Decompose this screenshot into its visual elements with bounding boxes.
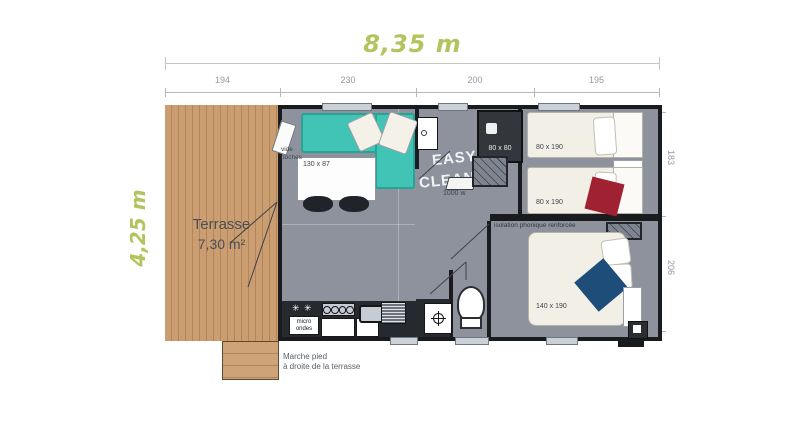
window-wc-bottom (455, 337, 489, 345)
floor-seam-horizontal (282, 224, 415, 225)
door-handle-icon (421, 130, 427, 136)
master-corner-unit-detail (633, 325, 641, 333)
footnote: Marche pied à droite de la terrasse (283, 352, 360, 372)
microwave-label-1: micro (290, 319, 318, 326)
floorplan-canvas: 8,35 m 194 230 200 195 4,25 m 183 206 Te… (0, 0, 800, 448)
kitchen-cabinet-1 (321, 318, 355, 337)
burner-icon (346, 306, 354, 314)
segment-tick-1 (165, 88, 166, 97)
microwave-icon: ✳ ✳ (292, 303, 313, 314)
washbasin-crosshair-icon (433, 313, 444, 324)
twin-bed-1-label: 80 x 190 (536, 144, 563, 151)
window-bathroom-top (438, 103, 468, 111)
toilet-tank (460, 317, 482, 329)
total-width-dimension: 8,35 m (165, 30, 660, 58)
twin-bed-1-pillow (593, 116, 618, 155)
chair-2 (339, 196, 369, 212)
shower-size-label: 80 x 80 (477, 145, 523, 152)
twin-bed-2-label: 80 x 190 (536, 199, 563, 206)
right-segment-label-1: 183 (666, 150, 676, 165)
total-height-dimension: 4,25 m (108, 188, 168, 268)
shower-head-icon (486, 123, 497, 134)
master-bed-label: 140 x 190 (536, 303, 567, 310)
right-segment-label-2: 206 (666, 260, 676, 275)
segment-line (165, 92, 660, 93)
window-kitchen-bottom (390, 337, 418, 345)
footnote-line-1: Marche pied (283, 352, 360, 362)
microwave-label-2: ondes (290, 326, 318, 333)
segment-label-2: 230 (280, 75, 416, 85)
wall-rear-step (618, 341, 644, 347)
chair-1 (303, 196, 333, 212)
vide-poches-line-2: poches (281, 154, 302, 162)
microwave-box: micro ondes (289, 316, 319, 335)
burner-icon (339, 306, 347, 314)
total-width-tick-right (659, 57, 660, 70)
vide-poches-line-1: vide (281, 146, 302, 154)
sink-drainer (381, 302, 406, 324)
total-width-line (165, 63, 660, 64)
hob (322, 303, 355, 316)
window-living-top (322, 103, 372, 111)
twin-bed-1-headboard (613, 112, 643, 158)
terrace-area: 7,30 m² (165, 236, 278, 252)
terrace-steps (222, 341, 279, 380)
burner-icon (331, 306, 339, 314)
wall-soundproof-separator (490, 214, 658, 221)
segment-tick-5 (659, 88, 660, 97)
burner-icon (323, 306, 331, 314)
segment-label-4: 195 (534, 75, 659, 85)
terrace-title: Terrasse (165, 216, 278, 233)
segment-tick-2 (280, 88, 281, 97)
heater-label: 1000 w (443, 190, 466, 198)
washbasin (424, 303, 452, 334)
wardrobe-hall (472, 156, 508, 187)
segment-label-3: 200 (416, 75, 534, 85)
footnote-line-2: à droite de la terrasse (283, 362, 360, 372)
table-size-label: 130 x 87 (303, 161, 330, 168)
segment-tick-4 (534, 88, 535, 97)
segment-tick-3 (416, 88, 417, 97)
total-width-tick-left (165, 57, 166, 70)
window-twin-bedroom-top (538, 103, 580, 111)
segment-label-1: 194 (165, 75, 280, 85)
window-master-bottom (546, 337, 578, 345)
wall-master-left (487, 221, 491, 337)
vide-poches-label: vide poches (281, 146, 302, 162)
